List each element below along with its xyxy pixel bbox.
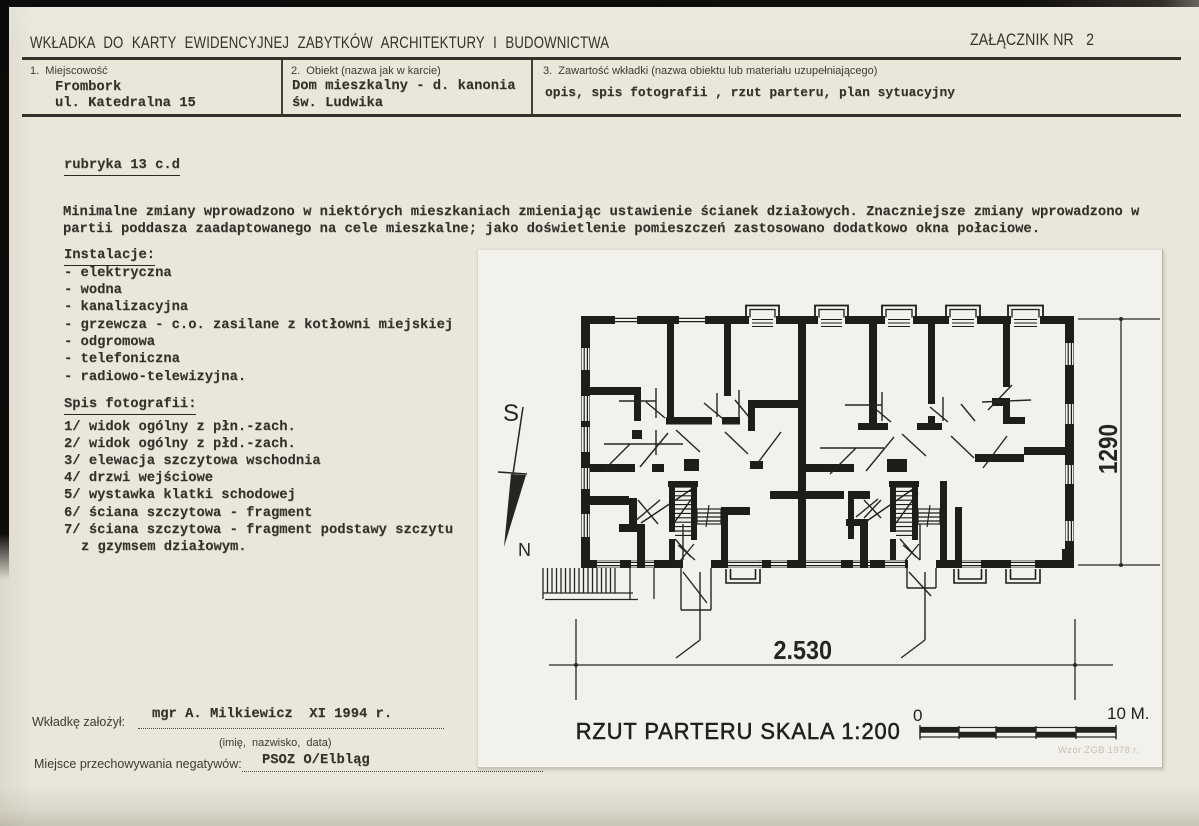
svg-text:1290: 1290 (1093, 424, 1123, 474)
svg-text:2.530: 2.530 (774, 637, 833, 665)
svg-text:S: S (503, 400, 519, 427)
svg-text:RZUT PARTERU SKALA 1:200: RZUT PARTERU SKALA 1:200 (576, 718, 901, 744)
svg-text:10 M.: 10 M. (1107, 704, 1150, 723)
svg-text:N: N (518, 540, 531, 560)
svg-text:0: 0 (913, 706, 922, 725)
